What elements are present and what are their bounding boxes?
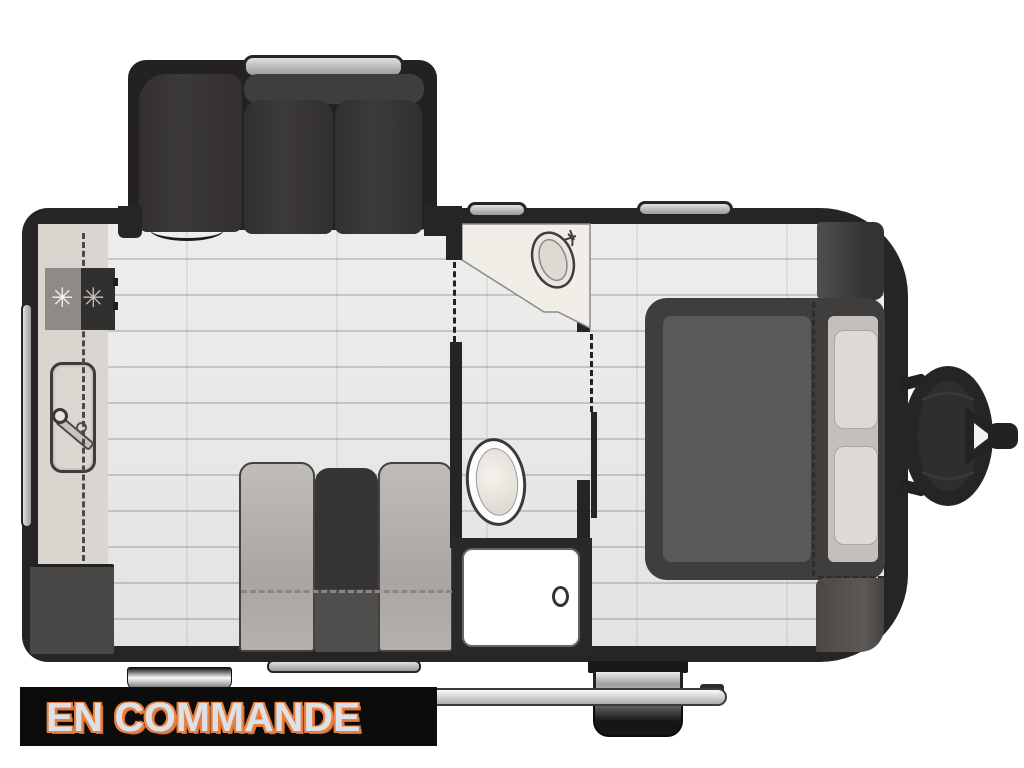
status-banner-label: EN COMMANDE	[46, 687, 360, 746]
wardrobe	[817, 222, 884, 300]
sofa-seat	[335, 100, 422, 234]
cooktop-knob	[113, 302, 118, 310]
kitchen-cooktop: ✳ ✳	[45, 268, 115, 330]
status-banner: EN COMMANDE	[20, 687, 437, 746]
cooktop-knob	[113, 278, 118, 286]
slide-opening-jamb	[118, 206, 142, 238]
refrigerator-cabinet	[30, 564, 114, 654]
dinette-bench-right	[378, 462, 453, 652]
dinette-dashed-line	[241, 590, 452, 593]
awning-rail	[425, 688, 727, 706]
bed-dashed-line	[812, 302, 815, 576]
bed-mattress	[663, 316, 811, 562]
hitch-assembly	[870, 350, 1024, 520]
hitch-coupler	[988, 423, 1018, 449]
top-window-1	[467, 202, 527, 218]
burner-icon: ✳	[51, 282, 74, 314]
burner-icon: ✳	[82, 282, 105, 314]
sofa-seat	[244, 100, 333, 234]
bathroom-wall	[450, 342, 462, 548]
corner-cabinet	[816, 578, 884, 652]
toilet-bowl-icon	[473, 446, 522, 518]
left-window	[21, 303, 33, 528]
kitchen-faucet-icon	[52, 408, 68, 424]
dinette-bench-left	[239, 462, 315, 652]
floorplan-image: ✳ ✳	[0, 0, 1024, 768]
slide-opening-jamb	[446, 230, 462, 260]
dinette-table	[315, 468, 378, 652]
shower-drain-icon	[552, 586, 569, 607]
swivel-arc-line	[150, 218, 224, 241]
bathroom-vanity	[452, 216, 600, 346]
sofa-chaise-seat	[139, 74, 242, 232]
bottom-window	[267, 660, 421, 673]
top-window-2	[637, 201, 733, 217]
bathroom-wall-stub	[591, 412, 597, 518]
